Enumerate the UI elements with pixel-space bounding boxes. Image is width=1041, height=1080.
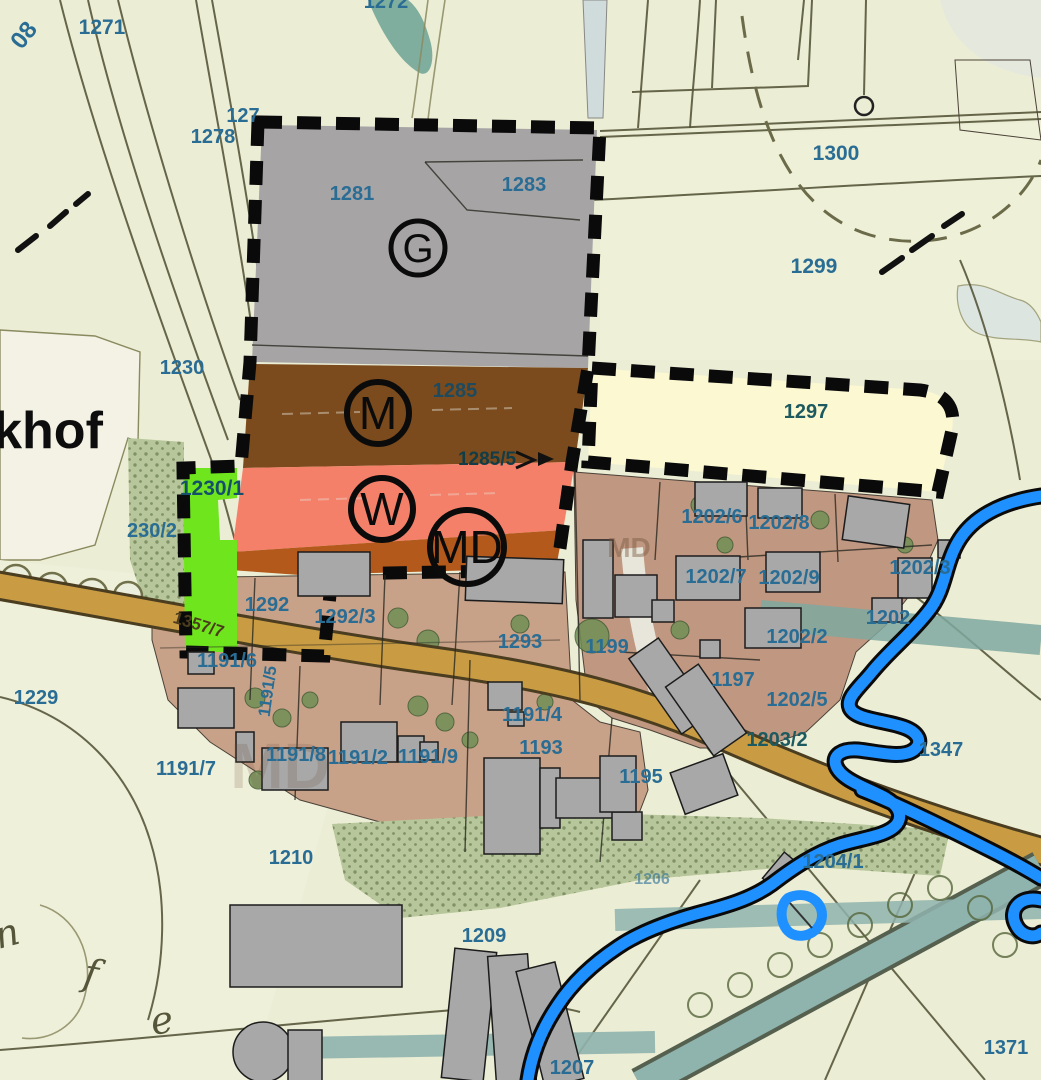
- parcel-label: 1229: [14, 687, 59, 709]
- parcel-label: 1281: [330, 183, 375, 205]
- parcel-label: 1299: [791, 255, 838, 278]
- parcel-label: 1285/5: [458, 449, 517, 470]
- parcel-label: 1371: [984, 1037, 1029, 1059]
- parcel-label: 1297: [784, 401, 829, 423]
- parcel-label: 1292: [245, 594, 290, 616]
- parcel-label: MD: [230, 730, 330, 802]
- parcel-label: 1191/6: [197, 650, 257, 672]
- parcel-label: 1191/2: [328, 747, 388, 769]
- parcel-label: MD: [607, 532, 651, 563]
- zone-m: [243, 364, 588, 468]
- parcel-label: 1206: [634, 871, 670, 888]
- parcel-label: 1285: [433, 380, 478, 402]
- parcel-label: 1293: [498, 631, 543, 653]
- parcel-label: 1203/2: [746, 729, 807, 751]
- parcel-label: 127: [226, 105, 259, 127]
- parcel-label: 1191/7: [156, 758, 216, 780]
- parcel-label: 1193: [519, 737, 562, 759]
- parcel-label: 1207: [550, 1057, 595, 1079]
- parcel-label: 1210: [269, 847, 314, 869]
- parcel-label: 1209: [462, 925, 507, 947]
- parcel-label: 1199: [585, 636, 628, 658]
- parcel-label: 1204/1: [802, 851, 863, 873]
- parcel-label: 1202: [866, 607, 911, 629]
- zone-marker-letter-w: W: [360, 483, 404, 535]
- parcel-label: 1278: [191, 126, 236, 148]
- parcel-label: 1197: [711, 669, 754, 691]
- zone-marker-letter-m: M: [359, 387, 397, 439]
- parcel-label: 1272: [364, 0, 409, 13]
- parcel-label: 1191/9: [398, 746, 458, 768]
- parcel-label: 1202/8: [748, 512, 809, 534]
- parcel-label: 1191/8: [266, 744, 326, 766]
- parcel-label: 1300: [813, 142, 860, 165]
- parcel-label: 1202/2: [766, 626, 827, 648]
- zone-marker-letter-g: G: [402, 227, 433, 271]
- parcel-label: 1271: [79, 16, 126, 39]
- parcel-label: 1202/5: [766, 689, 827, 711]
- parcel-label: 1230/1: [180, 477, 245, 500]
- parcel-label: 1292/3: [314, 606, 375, 628]
- zone-marker-letter-md: MD: [431, 521, 503, 573]
- parcel-label: 1283: [502, 174, 547, 196]
- parcel-label: 1230: [160, 357, 205, 379]
- map-canvas: 1272081271127127812811283130012991230kho…: [0, 0, 1041, 1080]
- parcel-label: 1202/7: [685, 566, 746, 588]
- parcel-label: 1202/6: [681, 506, 742, 528]
- place-name: khof: [0, 402, 104, 460]
- parcel-label: 1202/9: [758, 567, 819, 589]
- parcel-label: 1191/4: [502, 704, 563, 726]
- parcel-label: 1195: [619, 766, 662, 788]
- parcel-label: 1347: [919, 739, 964, 761]
- parcel-label: 1202/3: [889, 557, 950, 579]
- parcel-label: 230/2: [127, 520, 177, 542]
